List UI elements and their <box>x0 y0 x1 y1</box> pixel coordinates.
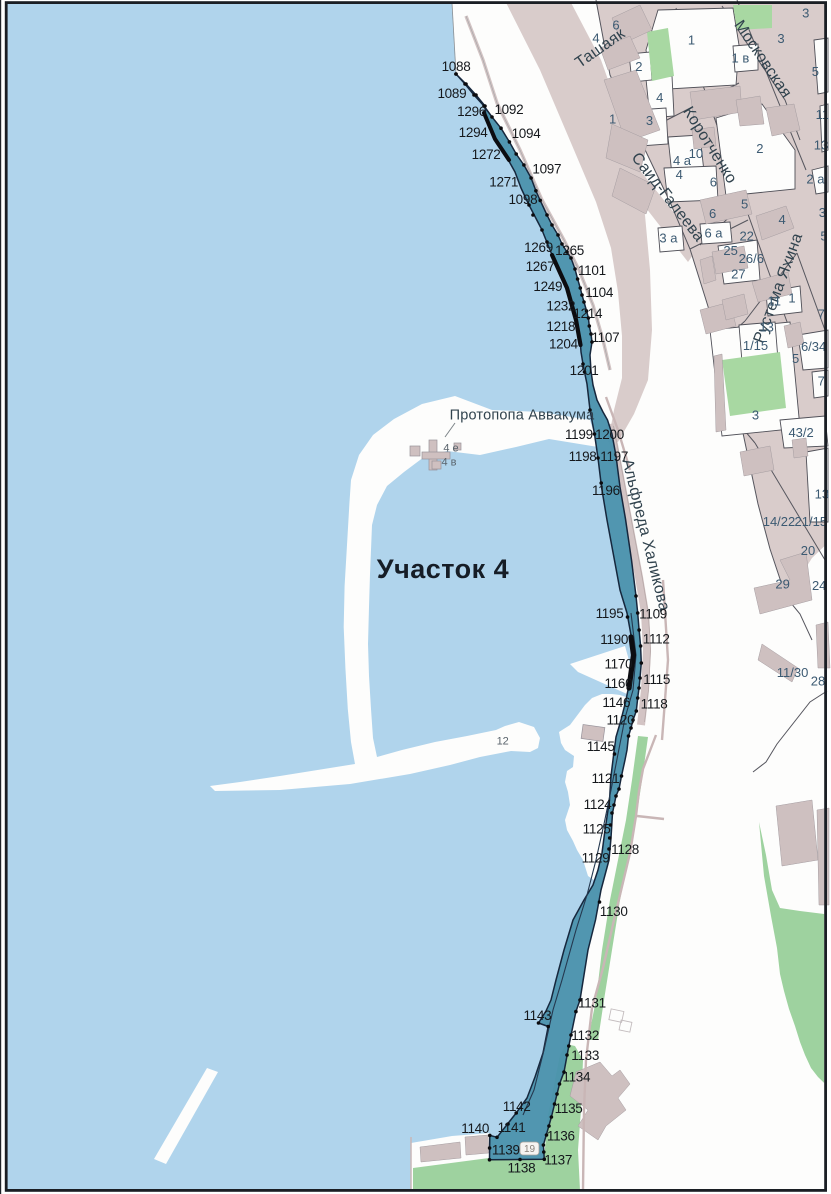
svg-text:22: 22 <box>739 228 753 243</box>
svg-text:43/2: 43/2 <box>788 425 813 440</box>
svg-text:1138: 1138 <box>507 1161 535 1176</box>
svg-text:6: 6 <box>612 17 619 32</box>
svg-text:1124: 1124 <box>584 797 613 812</box>
svg-text:1125: 1125 <box>583 821 611 836</box>
svg-text:1296: 1296 <box>457 104 486 119</box>
svg-text:1170: 1170 <box>604 656 632 671</box>
svg-text:6: 6 <box>710 174 717 189</box>
svg-text:1196: 1196 <box>592 483 620 498</box>
svg-text:1190: 1190 <box>600 632 628 647</box>
svg-text:13: 13 <box>759 320 773 335</box>
svg-text:4 а: 4 а <box>673 153 692 168</box>
svg-text:1129: 1129 <box>582 850 610 865</box>
svg-text:1200: 1200 <box>595 427 624 442</box>
svg-text:1098: 1098 <box>508 192 537 207</box>
svg-text:1120: 1120 <box>606 712 634 727</box>
svg-text:1195: 1195 <box>596 606 624 621</box>
svg-text:21/15: 21/15 <box>795 514 828 529</box>
svg-text:1107: 1107 <box>591 330 619 345</box>
svg-text:27: 27 <box>731 267 745 282</box>
svg-text:Протопопа Аввакума: Протопопа Аввакума <box>450 408 596 424</box>
svg-text:1146: 1146 <box>602 695 630 710</box>
svg-text:1/15: 1/15 <box>743 338 768 353</box>
svg-text:1232: 1232 <box>546 298 575 313</box>
svg-text:11: 11 <box>816 107 830 122</box>
svg-text:1 в: 1 в <box>732 51 750 66</box>
svg-text:1272: 1272 <box>472 147 501 162</box>
svg-text:1160: 1160 <box>604 676 632 691</box>
svg-text:1115: 1115 <box>643 672 670 687</box>
svg-text:11: 11 <box>768 294 782 309</box>
svg-text:4: 4 <box>656 90 663 105</box>
svg-text:1112: 1112 <box>643 632 670 647</box>
svg-text:14/22: 14/22 <box>763 514 796 529</box>
svg-text:1218: 1218 <box>546 319 575 334</box>
svg-text:2: 2 <box>635 59 642 74</box>
svg-text:1: 1 <box>788 291 795 306</box>
svg-text:3: 3 <box>752 408 759 423</box>
svg-text:1249: 1249 <box>533 279 562 294</box>
svg-text:1133: 1133 <box>571 1048 599 1063</box>
svg-text:5: 5 <box>812 64 819 79</box>
svg-text:1201: 1201 <box>570 363 599 378</box>
svg-text:1089: 1089 <box>437 86 466 101</box>
svg-text:1134: 1134 <box>562 1069 591 1084</box>
svg-text:5: 5 <box>792 351 799 366</box>
svg-text:28: 28 <box>811 674 825 689</box>
svg-text:1132: 1132 <box>571 1028 599 1043</box>
svg-text:4: 4 <box>676 167 683 182</box>
svg-text:1094: 1094 <box>512 126 542 141</box>
svg-text:12: 12 <box>497 736 509 748</box>
svg-text:4 в: 4 в <box>441 457 456 469</box>
svg-text:7: 7 <box>818 307 825 322</box>
svg-text:1198: 1198 <box>569 449 597 464</box>
svg-text:1118: 1118 <box>641 696 668 711</box>
svg-text:6/34: 6/34 <box>801 339 826 354</box>
svg-text:1204: 1204 <box>549 337 579 352</box>
svg-text:1135: 1135 <box>555 1101 583 1116</box>
svg-text:3: 3 <box>646 113 653 128</box>
svg-text:26/6: 26/6 <box>739 251 764 266</box>
svg-text:29: 29 <box>775 577 789 592</box>
svg-text:6: 6 <box>709 206 716 221</box>
svg-text:4: 4 <box>778 212 785 227</box>
svg-text:1197: 1197 <box>600 449 628 464</box>
svg-text:25: 25 <box>723 243 737 258</box>
svg-text:1092: 1092 <box>494 102 523 117</box>
svg-text:6 а: 6 а <box>704 226 723 241</box>
svg-text:1142: 1142 <box>503 1099 531 1114</box>
svg-text:1131: 1131 <box>578 996 606 1011</box>
svg-text:1267: 1267 <box>526 259 555 274</box>
svg-text:1214: 1214 <box>573 306 603 321</box>
svg-text:1265: 1265 <box>555 243 584 258</box>
svg-text:1141: 1141 <box>498 1120 526 1135</box>
svg-text:1199: 1199 <box>565 427 593 442</box>
svg-text:1269: 1269 <box>524 240 553 255</box>
svg-text:5: 5 <box>741 197 748 212</box>
svg-text:1143: 1143 <box>523 1008 551 1023</box>
svg-text:3 а: 3 а <box>659 231 678 246</box>
svg-text:1136: 1136 <box>547 1129 575 1144</box>
svg-text:1088: 1088 <box>442 59 471 74</box>
svg-text:7: 7 <box>818 374 825 389</box>
svg-text:1271: 1271 <box>489 174 518 189</box>
svg-text:1145: 1145 <box>587 739 615 754</box>
svg-text:1: 1 <box>609 112 616 127</box>
svg-text:19: 19 <box>524 1144 536 1155</box>
svg-text:1101: 1101 <box>578 263 606 278</box>
svg-text:1294: 1294 <box>459 125 489 140</box>
svg-text:1137: 1137 <box>544 1152 572 1167</box>
svg-text:1: 1 <box>688 32 695 47</box>
svg-text:1128: 1128 <box>611 842 639 857</box>
svg-text:3: 3 <box>777 31 784 46</box>
svg-text:1139: 1139 <box>492 1143 520 1158</box>
svg-text:2 а: 2 а <box>806 172 825 187</box>
svg-text:20: 20 <box>801 543 815 558</box>
svg-text:1130: 1130 <box>600 904 628 919</box>
svg-text:4 е: 4 е <box>443 443 458 455</box>
svg-text:1140: 1140 <box>461 1121 489 1136</box>
svg-text:1104: 1104 <box>585 285 614 300</box>
svg-text:1097: 1097 <box>532 161 561 176</box>
svg-text:2: 2 <box>756 141 763 156</box>
svg-text:11/30: 11/30 <box>777 665 809 680</box>
svg-text:1109: 1109 <box>639 607 667 622</box>
svg-text:Участок 4: Участок 4 <box>377 554 509 584</box>
svg-text:1121: 1121 <box>591 771 619 786</box>
svg-text:3: 3 <box>802 6 809 21</box>
svg-text:4: 4 <box>592 30 599 45</box>
